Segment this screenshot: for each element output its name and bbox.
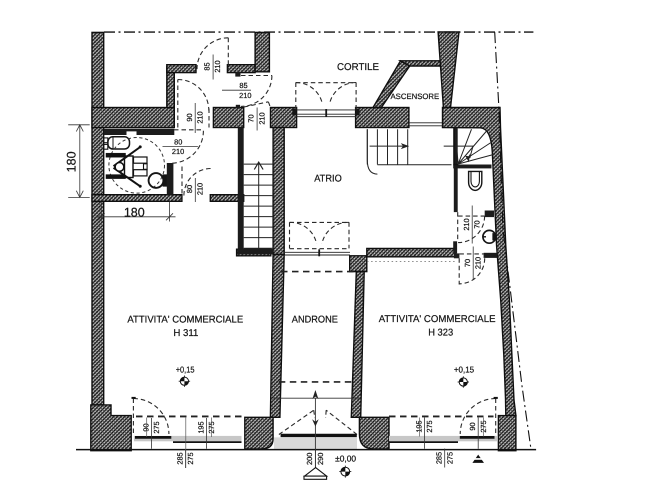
svg-text:90: 90	[142, 423, 151, 431]
svg-text:210: 210	[195, 111, 204, 123]
svg-text:70: 70	[463, 259, 472, 267]
svg-text:85: 85	[239, 81, 247, 90]
svg-text:90: 90	[468, 422, 477, 430]
svg-text:180: 180	[65, 151, 79, 172]
svg-text:285: 285	[435, 452, 444, 464]
svg-text:210: 210	[257, 112, 266, 124]
svg-text:275: 275	[425, 420, 434, 432]
svg-text:70: 70	[247, 114, 256, 122]
svg-text:ASCENSORE: ASCENSORE	[391, 92, 440, 101]
svg-text:±0,00: ±0,00	[335, 453, 356, 463]
svg-text:275: 275	[445, 452, 454, 464]
svg-text:H 323: H 323	[428, 328, 454, 339]
svg-text:H 311: H 311	[173, 328, 198, 339]
svg-text:ATTIVITA' COMMERCIALE: ATTIVITA' COMMERCIALE	[127, 315, 243, 326]
svg-text:210: 210	[462, 218, 471, 230]
svg-text:210: 210	[474, 257, 483, 269]
svg-text:275: 275	[186, 452, 195, 464]
svg-text:ANDRONE: ANDRONE	[292, 315, 339, 326]
svg-text:285: 285	[176, 452, 185, 464]
svg-text:CORTILE: CORTILE	[337, 62, 379, 73]
svg-text:90: 90	[185, 113, 194, 121]
svg-text:+0,15: +0,15	[454, 365, 474, 375]
svg-text:290: 290	[316, 453, 325, 465]
svg-text:210: 210	[196, 183, 205, 195]
svg-text:80: 80	[185, 185, 194, 193]
svg-text:195: 195	[197, 421, 206, 433]
svg-text:195: 195	[414, 420, 423, 432]
svg-text:ATRIO: ATRIO	[314, 173, 342, 184]
svg-text:70: 70	[472, 220, 481, 228]
svg-text:ATTIVITA' COMMERCIALE: ATTIVITA' COMMERCIALE	[379, 314, 496, 325]
svg-text:275: 275	[152, 421, 161, 433]
svg-text:210: 210	[213, 60, 222, 72]
svg-text:210: 210	[239, 91, 251, 100]
svg-text:210: 210	[172, 147, 184, 156]
svg-text:180: 180	[124, 206, 145, 220]
svg-text:85: 85	[203, 62, 212, 70]
svg-text:80: 80	[174, 138, 182, 147]
svg-text:200: 200	[305, 453, 314, 465]
svg-text:+0,15: +0,15	[176, 365, 195, 375]
